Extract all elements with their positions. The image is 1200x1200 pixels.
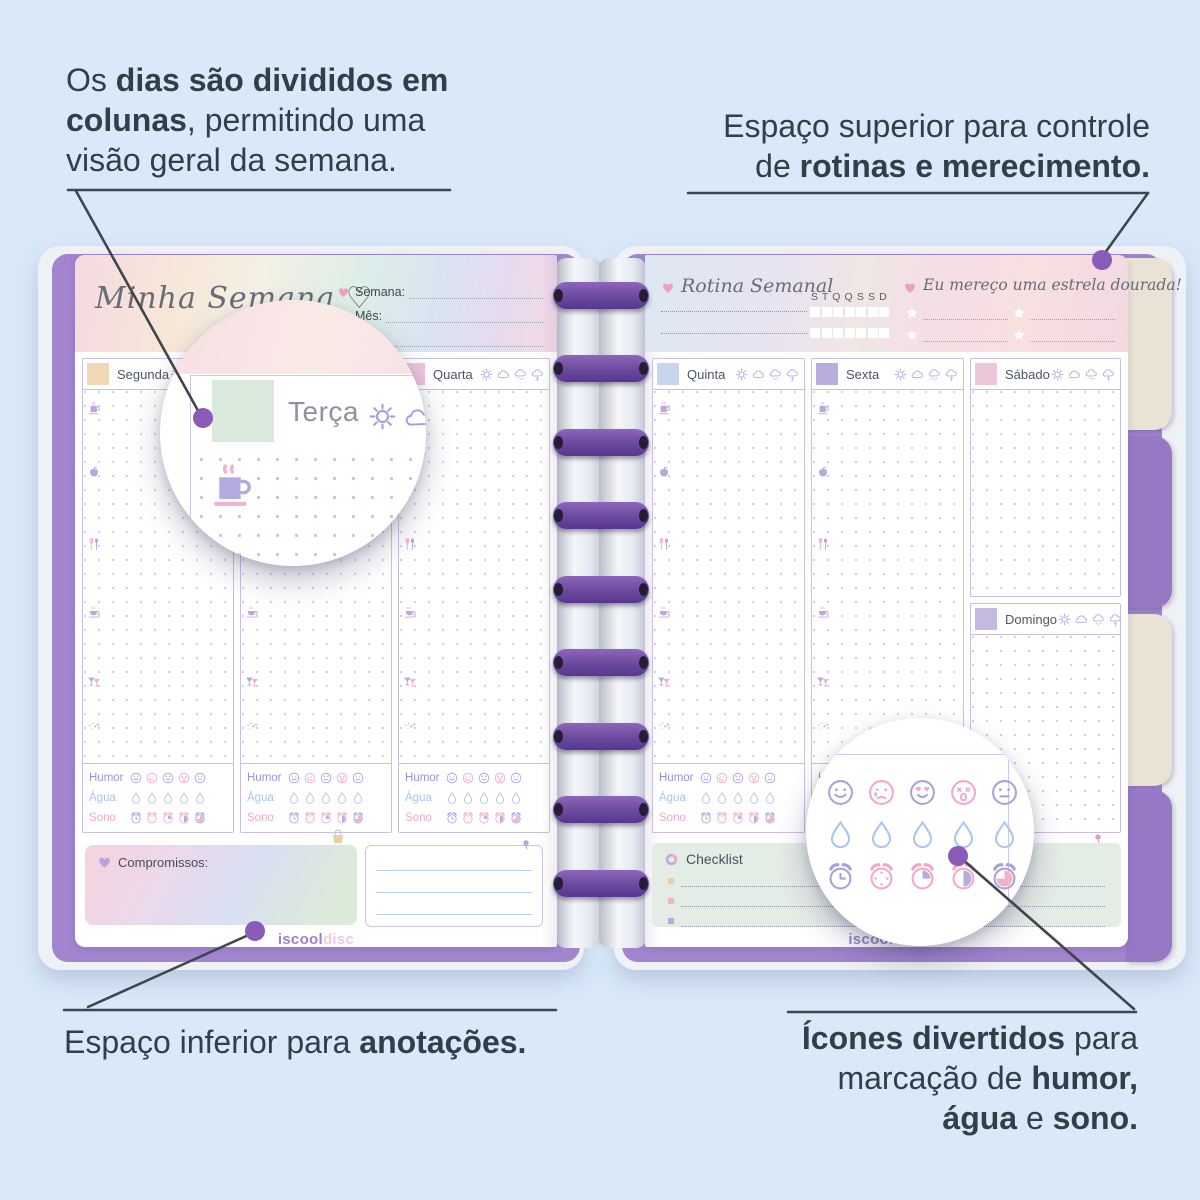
checkbox: [856, 307, 866, 317]
magnified-day-swatch: [212, 380, 274, 442]
shock-face-icon: [335, 771, 349, 785]
bullet: [668, 878, 674, 884]
cocktail-icon: [402, 674, 418, 690]
dot-grid: [653, 390, 804, 763]
weather-icons: [1057, 612, 1123, 627]
annotation-text-bold: colunas: [66, 102, 187, 138]
annotation-text-bold: Ícones divertidos: [802, 1020, 1065, 1056]
mood-icons: [129, 771, 207, 785]
droplet-icon: [824, 818, 857, 851]
rain-icon: [1084, 367, 1099, 382]
binding-disc: [553, 870, 649, 897]
shock-face-icon: [947, 776, 980, 809]
happy-face-icon: [129, 771, 143, 785]
alarm-clock-icon: [747, 811, 761, 825]
star-reward-row1: [905, 305, 1115, 320]
love-face-icon: [731, 771, 745, 785]
droplet-icon: [493, 791, 507, 805]
alarm-clock-icon: [335, 811, 349, 825]
neutral-face-icon: [763, 771, 777, 785]
routine-checkboxes-row2: [810, 328, 889, 338]
checkbox: [810, 307, 820, 317]
checkbox: [822, 307, 832, 317]
binding-disc: [553, 502, 649, 529]
alarm-clock-icon: [763, 811, 777, 825]
divider-tab-4: [1126, 790, 1172, 962]
cloud-icon: [910, 367, 925, 382]
sleep-icons: [287, 811, 365, 825]
droplet-icon: [335, 791, 349, 805]
cocktail-icon: [656, 674, 672, 690]
dot-grid: [971, 390, 1120, 596]
droplet-icon: [351, 791, 365, 805]
love-face-icon: [906, 776, 939, 809]
annotation-text: para: [1065, 1020, 1138, 1056]
sparkle-icon: [656, 720, 672, 736]
sono-label: Sono: [89, 812, 129, 824]
happy-face-icon: [445, 771, 459, 785]
teacup-icon: [86, 604, 102, 620]
coffee-icon: [815, 400, 831, 416]
bullet: [668, 898, 674, 904]
droplet-icon: [287, 791, 301, 805]
water-icons: [445, 791, 523, 805]
droplet-icon: [988, 818, 1021, 851]
annotation-text-bold: humor,: [1031, 1060, 1138, 1096]
agua-label: Água: [247, 792, 287, 804]
note-line: [376, 914, 532, 915]
alarm-clock-icon: [699, 811, 713, 825]
tracker-rows: Humor Água Sono: [241, 763, 391, 832]
apple-icon: [86, 464, 102, 480]
sun-icon: [366, 400, 399, 433]
annotation-text-bold: água: [942, 1100, 1017, 1136]
humor-label: Humor: [659, 772, 699, 784]
pin-icon: [1091, 829, 1105, 849]
droplet-icon: [509, 791, 523, 805]
day-column-quinta: Quinta Humor Água Sono: [652, 358, 805, 833]
rain-icon: [768, 367, 783, 382]
sad-face-icon: [865, 776, 898, 809]
teacup-icon: [656, 604, 672, 620]
neutral-face-icon: [988, 776, 1021, 809]
sleep-icons: [129, 811, 207, 825]
checkbox: [833, 328, 843, 338]
checklist-label: Checklist: [686, 851, 743, 867]
coffee-icon: [656, 400, 672, 416]
shock-face-icon: [747, 771, 761, 785]
write-line: [923, 327, 1008, 342]
storm-icon: [1101, 367, 1116, 382]
sono-label: Sono: [405, 812, 445, 824]
neutral-face-icon: [509, 771, 523, 785]
annotation-text-bold: anotações.: [359, 1024, 526, 1060]
droplet-icon: [731, 791, 745, 805]
mood-icons: [287, 771, 365, 785]
mood-icons: [445, 771, 523, 785]
note-line: [376, 892, 532, 893]
droplet-icon: [763, 791, 777, 805]
cloud-icon: [1067, 367, 1082, 382]
divider-tab-2: [1126, 436, 1172, 608]
notes-box: [365, 845, 543, 927]
routine-checkboxes-row1: [810, 307, 889, 317]
rain-icon: [1091, 612, 1106, 627]
humor-label: Humor: [405, 772, 445, 784]
heart-icon: [97, 855, 112, 870]
binding-disc: [553, 355, 649, 382]
annotation-text: Espaço superior para controle: [723, 108, 1150, 144]
alarm-clock-icon: [988, 860, 1021, 893]
droplet-icon: [699, 791, 713, 805]
droplet-icon: [193, 791, 207, 805]
day-header: Sexta: [812, 359, 963, 390]
day-name: Sábado: [1005, 367, 1050, 382]
alarm-clock-icon: [129, 811, 143, 825]
storm-icon: [530, 367, 545, 382]
right-page-header: Rotina Semanal S T Q Q S S D Eu mereço u…: [645, 255, 1128, 352]
alarm-clock-icon: [145, 811, 159, 825]
sad-face-icon: [715, 771, 729, 785]
love-face-icon: [319, 771, 333, 785]
pin-icon: [519, 835, 533, 855]
cutlery-icon: [86, 536, 102, 552]
coffee-icon: [204, 458, 258, 512]
write-line: [661, 311, 807, 312]
storm-icon: [944, 367, 959, 382]
checkbox: [879, 307, 889, 317]
mood-icons: [699, 771, 777, 785]
alarm-clock-icon: [287, 811, 301, 825]
sparkle-icon: [402, 720, 418, 736]
day-color-swatch: [657, 363, 679, 385]
agua-label: Água: [659, 792, 699, 804]
binding-disc: [553, 649, 649, 676]
heart-icon: [337, 286, 350, 299]
checkbox: [845, 307, 855, 317]
happy-face-icon: [699, 771, 713, 785]
love-face-icon: [161, 771, 175, 785]
droplet-icon: [445, 791, 459, 805]
teacup-icon: [815, 604, 831, 620]
apple-icon: [656, 464, 672, 480]
alarm-clock-icon: [509, 811, 523, 825]
day-name: Sexta: [846, 367, 879, 382]
droplet-icon: [303, 791, 317, 805]
magnified-header-gradient: [160, 300, 426, 374]
tracker-rows: Humor Água Sono: [653, 763, 804, 832]
droplet-icon: [747, 791, 761, 805]
annotation-notes: Espaço inferior para anotações.: [64, 1022, 624, 1062]
rain-icon: [927, 367, 942, 382]
neutral-face-icon: [193, 771, 207, 785]
alarm-clock-icon: [445, 811, 459, 825]
star-icon: [1012, 306, 1026, 320]
annotation-columns: Os dias são divididos em colunas, permit…: [66, 60, 546, 180]
checkbox: [810, 328, 820, 338]
droplet-icon: [477, 791, 491, 805]
droplet-icon: [906, 818, 939, 851]
star-icon: [1012, 328, 1026, 342]
field-semana: Semana:: [337, 279, 543, 299]
happy-face-icon: [824, 776, 857, 809]
commitments-label: Compromissos:: [118, 855, 208, 870]
humor-label: Humor: [89, 772, 129, 784]
day-name: Quarta: [433, 367, 473, 382]
field-label: Semana:: [355, 285, 405, 299]
cutlery-icon: [656, 536, 672, 552]
day-color-swatch: [975, 363, 997, 385]
teacup-icon: [244, 604, 260, 620]
cocktail-icon: [244, 674, 260, 690]
star-icon: [905, 306, 919, 320]
heart-icon: [661, 281, 675, 295]
droplet-icon: [865, 818, 898, 851]
day-column-sabado: Sábado: [970, 358, 1121, 597]
sad-face-icon: [461, 771, 475, 785]
shock-face-icon: [177, 771, 191, 785]
heart-icon: [903, 281, 917, 295]
weather-icons: [734, 367, 800, 382]
product-infographic: Minha Semana ♡ Semana: Mês: Ano:: [0, 0, 1200, 1200]
sparkle-icon: [815, 720, 831, 736]
checkbox: [879, 328, 889, 338]
water-icons: [287, 791, 365, 805]
binding-disc: [553, 723, 649, 750]
sparkle-icon: [86, 720, 102, 736]
droplet-icon: [145, 791, 159, 805]
binding-disc: [553, 796, 649, 823]
alarm-clock-icon: [161, 811, 175, 825]
alarm-clock-icon: [493, 811, 507, 825]
alarm-clock-icon: [947, 860, 980, 893]
humor-label: Humor: [247, 772, 287, 784]
sad-face-icon: [303, 771, 317, 785]
happy-face-icon: [287, 771, 301, 785]
droplet-icon: [177, 791, 191, 805]
agua-label: Água: [89, 792, 129, 804]
rain-icon: [513, 367, 528, 382]
week-letters: S T Q Q S S D: [811, 291, 887, 303]
day-header: Domingo: [971, 604, 1120, 635]
storm-icon: [1108, 612, 1123, 627]
sun-icon: [1057, 612, 1072, 627]
droplet-icon: [461, 791, 475, 805]
logo-part1: iscool: [278, 931, 323, 948]
magnifier-tracker-icons: [806, 718, 1034, 946]
day-color-swatch: [87, 363, 109, 385]
donut-icon: [664, 852, 679, 867]
star-icon: [905, 328, 919, 342]
annotation-text-bold: dias são divididos em: [116, 62, 449, 98]
annotation-icons: Ícones divertidos para marcação de humor…: [698, 1018, 1138, 1138]
annotation-text: de: [755, 148, 799, 184]
day-color-swatch: [816, 363, 838, 385]
weather-icons: [893, 367, 959, 382]
logo-part2: disc: [323, 931, 354, 948]
tracker-rows: Humor Água Sono: [399, 763, 549, 832]
alarm-clock-icon: [477, 811, 491, 825]
neutral-face-icon: [351, 771, 365, 785]
weather-icons: [1050, 367, 1116, 382]
water-icons: [129, 791, 207, 805]
day-color-swatch: [975, 608, 997, 630]
cocktail-icon: [86, 674, 102, 690]
sun-icon: [479, 367, 494, 382]
brand-logo: iscooldisc: [75, 931, 557, 948]
annotation-text: Espaço inferior para: [64, 1024, 359, 1060]
droplet-icon: [129, 791, 143, 805]
agua-label: Água: [405, 792, 445, 804]
sun-icon: [893, 367, 908, 382]
divider-tab-3: [1126, 614, 1172, 786]
annotation-text-bold: rotinas e merecimento.: [800, 148, 1150, 184]
shock-face-icon: [493, 771, 507, 785]
day-header: Sábado: [971, 359, 1120, 390]
annotation-text: Os: [66, 62, 116, 98]
cloud-icon: [751, 367, 766, 382]
sono-label: Sono: [247, 812, 287, 824]
annotation-text: marcação de: [837, 1060, 1031, 1096]
sad-face-icon: [145, 771, 159, 785]
storm-icon: [785, 367, 800, 382]
coffee-icon: [86, 400, 102, 416]
teacup-icon: [402, 604, 418, 620]
sono-label: Sono: [659, 812, 699, 824]
checkbox: [845, 328, 855, 338]
cloud-icon: [1074, 612, 1089, 627]
bullet: [668, 918, 674, 924]
write-line: [409, 284, 543, 299]
magnified-grid-line: [190, 375, 426, 376]
magnified-day-name: Terça: [288, 396, 359, 428]
droplet-icon: [161, 791, 175, 805]
annotation-routines: Espaço superior para controle de rotinas…: [630, 106, 1150, 186]
write-line: [1030, 305, 1115, 320]
binding-disc: [553, 576, 649, 603]
alarm-clock-icon: [319, 811, 333, 825]
checkbox: [856, 328, 866, 338]
sleep-icons: [445, 811, 523, 825]
binding-disc: [553, 429, 649, 456]
magnified-grid-line: [806, 754, 1034, 755]
alarm-clock-icon: [824, 860, 857, 893]
annotation-text: e: [1017, 1100, 1053, 1136]
sun-icon: [1050, 367, 1065, 382]
cloud-icon: [402, 402, 426, 434]
apple-icon: [815, 464, 831, 480]
dot-grid: [812, 390, 963, 763]
magnifier-terca: Terça: [160, 300, 426, 566]
alarm-clock-icon: [193, 811, 207, 825]
annotation-text: , permitindo uma: [187, 102, 425, 138]
alarm-clock-icon: [715, 811, 729, 825]
sun-icon: [734, 367, 749, 382]
write-line: [923, 305, 1008, 320]
cocktail-icon: [815, 674, 831, 690]
love-face-icon: [477, 771, 491, 785]
droplet-icon: [947, 818, 980, 851]
water-icons: [699, 791, 777, 805]
star-reward-row2: [905, 327, 1115, 342]
star-title: Eu mereço uma estrela dourada!: [923, 276, 1182, 294]
sparkle-icon: [244, 720, 260, 736]
magnified-grid-line: [190, 375, 191, 566]
checkbox: [868, 307, 878, 317]
alarm-clock-icon: [865, 860, 898, 893]
droplet-icon: [715, 791, 729, 805]
weather-icons: [479, 367, 545, 382]
tracker-rows: Humor Água Sono: [83, 763, 233, 832]
alarm-clock-icon: [303, 811, 317, 825]
write-line: [1030, 327, 1115, 342]
checkbox: [868, 328, 878, 338]
checkbox: [833, 307, 843, 317]
sleep-icons: [699, 811, 777, 825]
alarm-clock-icon: [461, 811, 475, 825]
alarm-clock-icon: [177, 811, 191, 825]
day-header: Quinta: [653, 359, 804, 390]
alarm-clock-icon: [906, 860, 939, 893]
cloud-icon: [496, 367, 511, 382]
checkbox: [822, 328, 832, 338]
binding-disc: [553, 282, 649, 309]
cutlery-icon: [815, 536, 831, 552]
write-line: [661, 333, 807, 334]
day-name: Domingo: [1005, 612, 1057, 627]
binder-clip-icon: [327, 825, 349, 849]
commitments-box: Compromissos:: [85, 845, 357, 925]
day-name: Quinta: [687, 367, 725, 382]
annotation-text: visão geral da semana.: [66, 142, 397, 178]
droplet-icon: [319, 791, 333, 805]
note-line: [376, 870, 532, 871]
annotation-text-bold: sono.: [1053, 1100, 1138, 1136]
alarm-clock-icon: [731, 811, 745, 825]
alarm-clock-icon: [351, 811, 365, 825]
